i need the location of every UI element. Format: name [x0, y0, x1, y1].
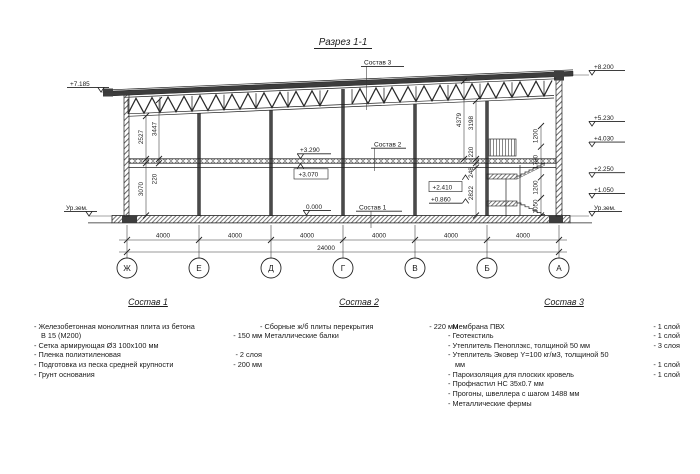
slab-top-label: +3.290	[300, 147, 320, 154]
drawing-title: Разрез 1-1	[319, 37, 368, 48]
composition-title: Состав 1	[34, 297, 262, 309]
composition-block-3: Состав 3 - Мембрана ПВХ- 1 слой - Геотек…	[448, 297, 680, 408]
roof-membrane-line	[106, 70, 573, 90]
elevation-mark-icon	[303, 210, 309, 215]
dim-label: 248	[468, 167, 475, 178]
ground-slab	[88, 216, 592, 223]
dim-label: 3070	[138, 181, 145, 196]
item-text: - Подготовка из песка средней крупности	[34, 360, 173, 370]
stair-lower-level-label: +0.860	[431, 197, 451, 204]
dim-label: 2527	[138, 129, 145, 144]
item-value: - 3 слоя	[649, 341, 680, 351]
dim-label: 1200	[533, 128, 540, 143]
drawing-sheet: Разрез 1-1	[0, 0, 700, 474]
sostav3-leader-label: Состав 3	[364, 60, 392, 67]
elevation-label: +5.230	[594, 115, 614, 122]
composition-item: - Железобетонная монолитная плита из бет…	[34, 322, 262, 341]
item-text: - Металлические балки	[260, 331, 339, 341]
item-text: - Мембрана ПВХ	[448, 322, 505, 332]
item-text: - Грунт основания	[34, 370, 95, 380]
composition-item: - Утеплитель Пеноплэкс, толщиной 50 мм- …	[448, 341, 680, 351]
dim-label: 220	[151, 173, 158, 184]
dim-label: 2822	[468, 185, 475, 200]
dim-label: 1050	[533, 199, 540, 214]
item-text: - Профнастил НС 35х0.7 мм	[448, 379, 544, 389]
bay-dim-label: 4000	[372, 233, 387, 240]
slab-bottom-label: +3.070	[299, 172, 319, 179]
stair-landing-upper	[487, 174, 517, 179]
bay-dim-label: 4000	[228, 233, 243, 240]
elevation-mark-icon	[589, 173, 595, 178]
item-text: - Прогоны, швеллера с шагом 1488 мм	[448, 389, 579, 399]
roof-edge-left	[103, 89, 113, 97]
elevation-mark-icon	[589, 193, 595, 198]
composition-block-1: Состав 1 - Железобетонная монолитная пли…	[34, 297, 262, 379]
dim-label: 4379	[456, 112, 463, 127]
item-value: - 1 слой	[649, 322, 680, 332]
item-value: - 150 мм	[229, 331, 262, 341]
ground-level-label: Ур.зем.	[66, 205, 88, 212]
composition-item: - Металлические балки	[260, 331, 458, 341]
stair-upper-level-label: +2.410	[433, 184, 453, 191]
composition-item: - Мембрана ПВХ- 1 слой	[448, 322, 680, 332]
composition-item: - Профнастил НС 35х0.7 мм	[448, 379, 680, 389]
elevation-mark-icon	[86, 211, 92, 216]
item-text: - Сборные ж/б плиты перекрытия	[260, 322, 373, 332]
axis-label: Д	[268, 264, 274, 273]
item-text: - Железобетонная монолитная плита из бет…	[34, 322, 201, 341]
bay-dim-label: 4000	[516, 233, 531, 240]
item-text: - Утеплитель Пеноплэкс, толщиной 50 мм	[448, 341, 590, 351]
axis-label: Б	[484, 264, 489, 273]
composition-item: - Утеплитель Эковер Y=100 кг/м3, толщино…	[448, 350, 680, 369]
composition-item: - Подготовка из песка средней крупности-…	[34, 360, 262, 370]
elevation-label: +1.050	[594, 187, 614, 194]
roof	[103, 70, 573, 97]
dim-label: 220	[468, 146, 475, 157]
item-value: - 1 слой	[649, 331, 680, 341]
elevation-label: +2.250	[594, 166, 614, 173]
elevation-marks-left: +7.185 Ур.зем.	[64, 81, 124, 216]
dim-bottom: 4000 4000 4000 4000 4000 4000 24000	[119, 225, 567, 258]
composition-item: - Прогоны, швеллера с шагом 1488 мм	[448, 389, 680, 399]
axis-bubbles: Ж Е Д Г В Б А	[117, 258, 569, 278]
right-wall	[556, 78, 562, 216]
elevation-mark-icon	[589, 211, 595, 216]
composition-item: - Пароизоляция для плоских кровель- 1 сл…	[448, 370, 680, 380]
bay-dim-label: 4000	[444, 233, 459, 240]
item-text: - Геотекстиль	[448, 331, 496, 341]
sostav2-leader-label: Состав 2	[374, 141, 402, 148]
dim-label: 1200	[533, 180, 540, 195]
elevation-mark-icon	[589, 121, 595, 126]
composition-item: - Геотекстиль- 1 слой	[448, 331, 680, 341]
elevation-mark-icon	[297, 154, 303, 159]
ground-level-label: Ур.зем.	[594, 205, 616, 212]
item-value: - 1 слой	[649, 370, 680, 380]
stair-landing-lower	[487, 201, 517, 206]
item-text: - Утеплитель Эковер Y=100 кг/м3, толщино…	[448, 350, 610, 369]
composition-block-2: Состав 2 - Сборные ж/б плиты перекрытия-…	[260, 297, 458, 341]
bay-dim-label: 4000	[156, 233, 171, 240]
item-text: - Пленка полиэтиленовая	[34, 350, 121, 360]
item-text: - Сетка армирующая Ø3 100х100 мм	[34, 341, 159, 351]
elevation-mark-icon	[589, 142, 595, 147]
footing-left	[122, 216, 137, 223]
composition-title: Состав 2	[260, 297, 458, 309]
item-value: - 2 слоя	[231, 350, 262, 360]
item-value: - 1 слой	[649, 360, 680, 370]
composition-item: - Металлические фермы	[448, 399, 680, 409]
composition-item: - Грунт основания	[34, 370, 262, 380]
stair-railing	[489, 139, 516, 156]
sostav1-leader-label: Состав 1	[359, 204, 387, 211]
dim-chain-right-wall: 1200 1780 1200 1050	[533, 123, 544, 219]
axis-label: В	[412, 264, 418, 273]
axis-label: Г	[341, 264, 346, 273]
total-dim-label: 24000	[317, 245, 335, 252]
footing-right	[549, 216, 563, 223]
item-text: - Металлические фермы	[448, 399, 532, 409]
item-value: - 200 мм	[229, 360, 262, 370]
elevation-label: +8.200	[594, 64, 614, 71]
item-text: - Пароизоляция для плоских кровель	[448, 370, 574, 380]
dim-label: 3198	[468, 115, 475, 130]
composition-item: - Пленка полиэтиленовая- 2 слоя	[34, 350, 262, 360]
axis-label: Е	[196, 264, 202, 273]
axis-label: А	[556, 264, 562, 273]
composition-title: Состав 3	[448, 297, 680, 309]
elevation-marks-right: +8.200 +5.230 +4.030 +2.250 +1.050 Ур.зе…	[564, 64, 625, 216]
section-drawing: Разрез 1-1	[0, 0, 700, 292]
dim-label: 1780	[533, 154, 540, 169]
axis-label: Ж	[123, 264, 131, 273]
elevation-label: +7.185	[70, 81, 90, 88]
bay-dim-label: 4000	[300, 233, 315, 240]
composition-item: - Сборные ж/б плиты перекрытия- 220 мм	[260, 322, 458, 332]
elevation-label: +4.030	[594, 136, 614, 143]
dim-label: 3447	[151, 121, 158, 136]
elevation-mark-icon	[589, 70, 595, 75]
composition-item: - Сетка армирующая Ø3 100х100 мм	[34, 341, 262, 351]
floor-zero-label: 0.000	[306, 204, 322, 211]
